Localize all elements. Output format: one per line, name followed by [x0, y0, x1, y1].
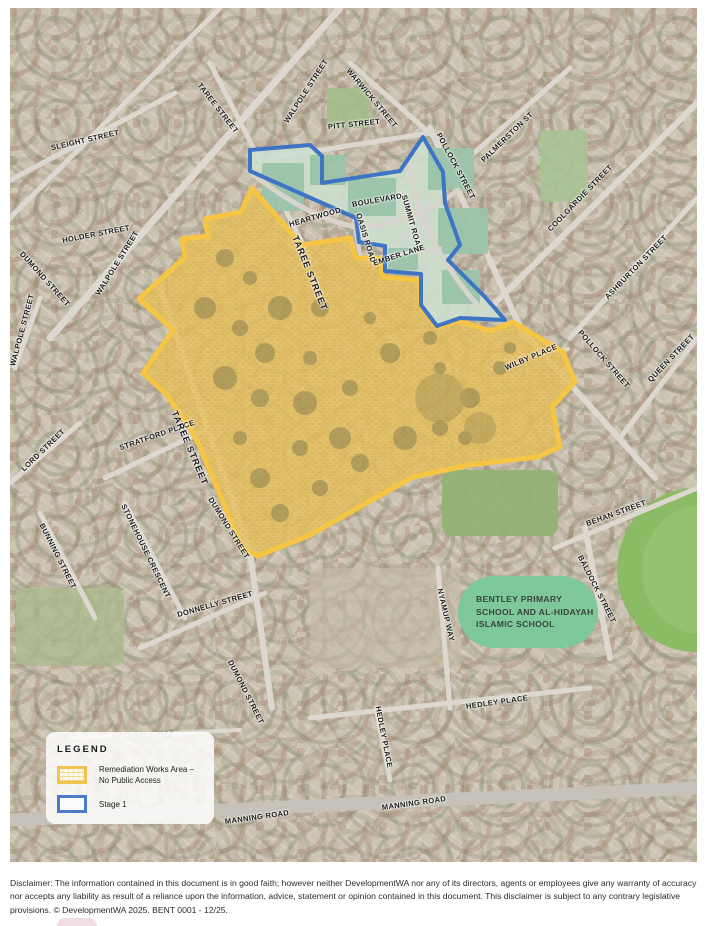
legend-title: LEGEND [57, 744, 214, 755]
school-label-line: BENTLEY PRIMARY [476, 593, 598, 605]
legend-swatch-stage1 [57, 795, 87, 813]
disclaimer-text: Disclaimer: The information contained in… [10, 877, 698, 917]
legend-item-label: Stage 1 [99, 799, 127, 810]
legend-item: Stage 1 [57, 795, 214, 813]
legend-swatch-remediation [57, 766, 87, 784]
legend-item: Remediation Works Area –No Public Access [57, 764, 214, 786]
school-label-line: SCHOOL AND AL-HIDAYAH [476, 606, 598, 618]
aerial-basemap: SLEIGHT STREETTAREE STREETWALPOLE STREET… [10, 8, 697, 862]
school-label: BENTLEY PRIMARY SCHOOL AND AL-HIDAYAH IS… [458, 576, 598, 648]
school-label-line: ISLAMIC SCHOOL [476, 618, 598, 630]
page: { "colors":{ "remediation_fill":"#E8C15E… [0, 0, 707, 925]
legend-item-label: Remediation Works Area –No Public Access [99, 764, 194, 786]
legend-items: Remediation Works Area –No Public Access… [57, 764, 214, 813]
legend: LEGEND Remediation Works Area –No Public… [46, 732, 214, 824]
